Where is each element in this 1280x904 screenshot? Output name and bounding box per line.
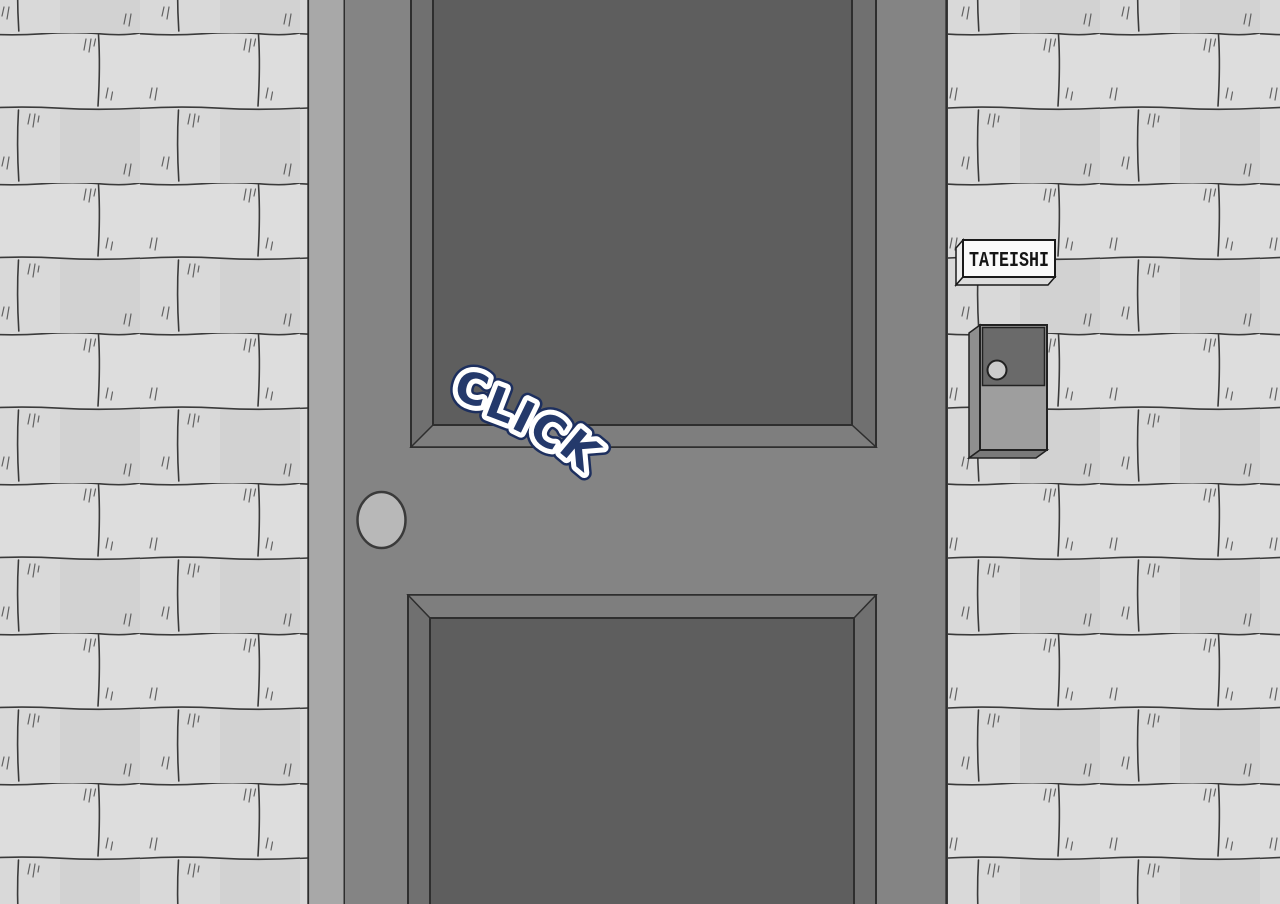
door-knob[interactable]: [358, 492, 406, 548]
brick-wall-left: [0, 0, 308, 904]
upper-panel-bottom-bevel: [411, 425, 876, 447]
nameplate-text: TATEISHI: [969, 250, 1049, 273]
door-scene-illustration: TATEISHI CLICK CLICK CLICK: [0, 0, 1280, 904]
door-frame-jamb: [308, 0, 345, 904]
lower-door-panel: [408, 595, 876, 904]
lower-panel-top-bevel: [408, 595, 876, 618]
doorbell-side-face: [969, 325, 980, 458]
doorbell-intercom: [969, 325, 1047, 458]
nameplate: TATEISHI: [956, 240, 1055, 285]
upper-panel-inset: [433, 0, 852, 425]
scene: TATEISHI CLICK CLICK CLICK: [0, 0, 1280, 904]
doorbell-button[interactable]: [988, 361, 1007, 380]
nameplate-bottom-face: [956, 277, 1055, 285]
doorbell-bottom-face: [969, 450, 1047, 458]
lower-panel-inset: [430, 618, 854, 904]
